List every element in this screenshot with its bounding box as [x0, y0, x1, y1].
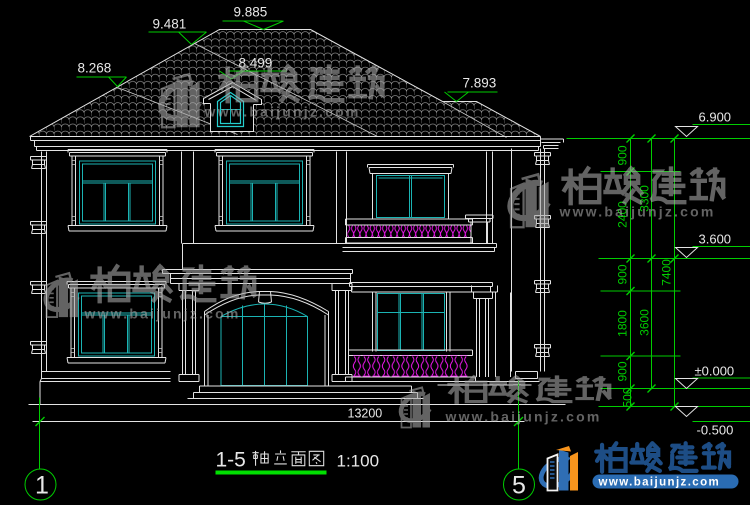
svg-text:-0.500: -0.500: [697, 423, 734, 438]
svg-text:www.baijunjz.com: www.baijunjz.com: [445, 409, 602, 425]
svg-text:www.baijunjz.com: www.baijunjz.com: [204, 104, 361, 120]
svg-text:1: 1: [35, 472, 49, 500]
svg-text:7400: 7400: [660, 259, 674, 286]
svg-text:900: 900: [616, 264, 630, 284]
svg-text:3.600: 3.600: [699, 232, 732, 247]
svg-text:1:100: 1:100: [337, 452, 380, 471]
svg-text:1800: 1800: [616, 310, 630, 337]
svg-text:9.885: 9.885: [234, 5, 268, 20]
svg-text:3600: 3600: [638, 309, 652, 336]
svg-text:900: 900: [616, 361, 630, 381]
svg-text:13200: 13200: [348, 407, 383, 421]
svg-text:7.893: 7.893: [463, 76, 497, 91]
svg-text:www.baijunjz.com: www.baijunjz.com: [559, 204, 716, 220]
svg-text:9.481: 9.481: [153, 17, 187, 32]
svg-text:5: 5: [512, 472, 526, 500]
svg-text:8.268: 8.268: [78, 61, 112, 76]
svg-text:www.baijunjz.com: www.baijunjz.com: [84, 306, 241, 322]
svg-text:6.900: 6.900: [699, 110, 732, 125]
svg-text:900: 900: [616, 145, 630, 165]
svg-text:±0.000: ±0.000: [695, 364, 735, 379]
svg-text:500: 500: [621, 387, 635, 407]
svg-text:1-5: 1-5: [216, 449, 246, 472]
svg-text:www.baijunjz.com: www.baijunjz.com: [598, 477, 721, 489]
